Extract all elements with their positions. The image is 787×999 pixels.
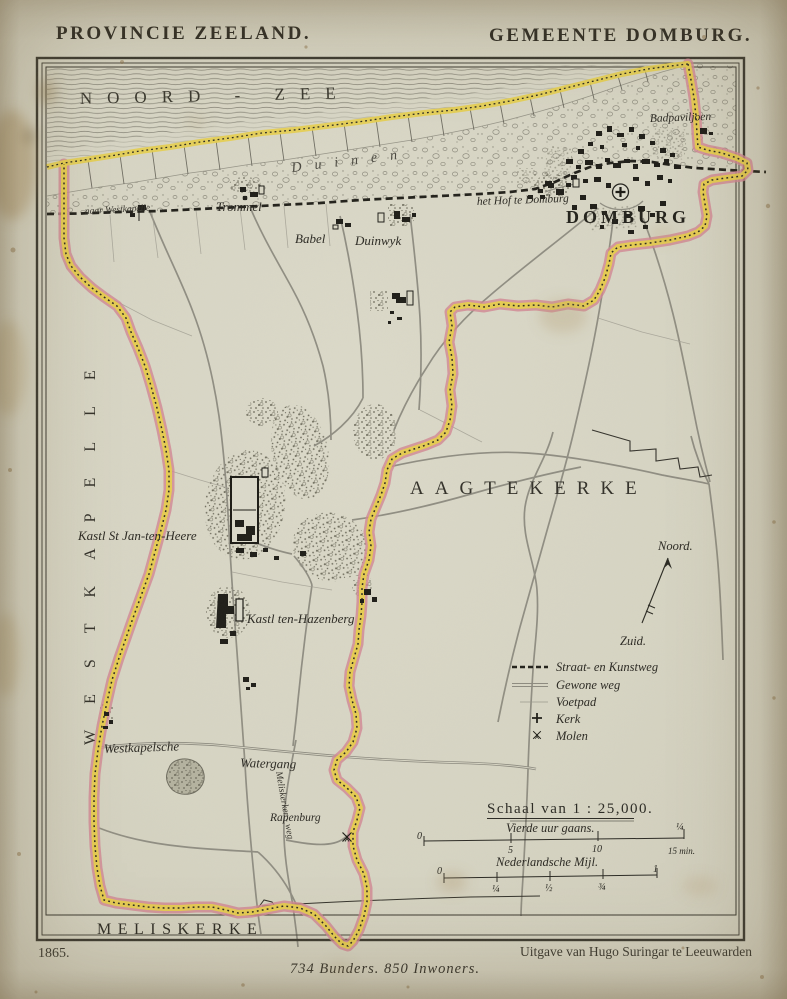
- paper-grain: [0, 0, 787, 999]
- map-svg: MELISKERKE: [0, 0, 787, 999]
- map-sheet: MELISKERKE: [0, 0, 787, 999]
